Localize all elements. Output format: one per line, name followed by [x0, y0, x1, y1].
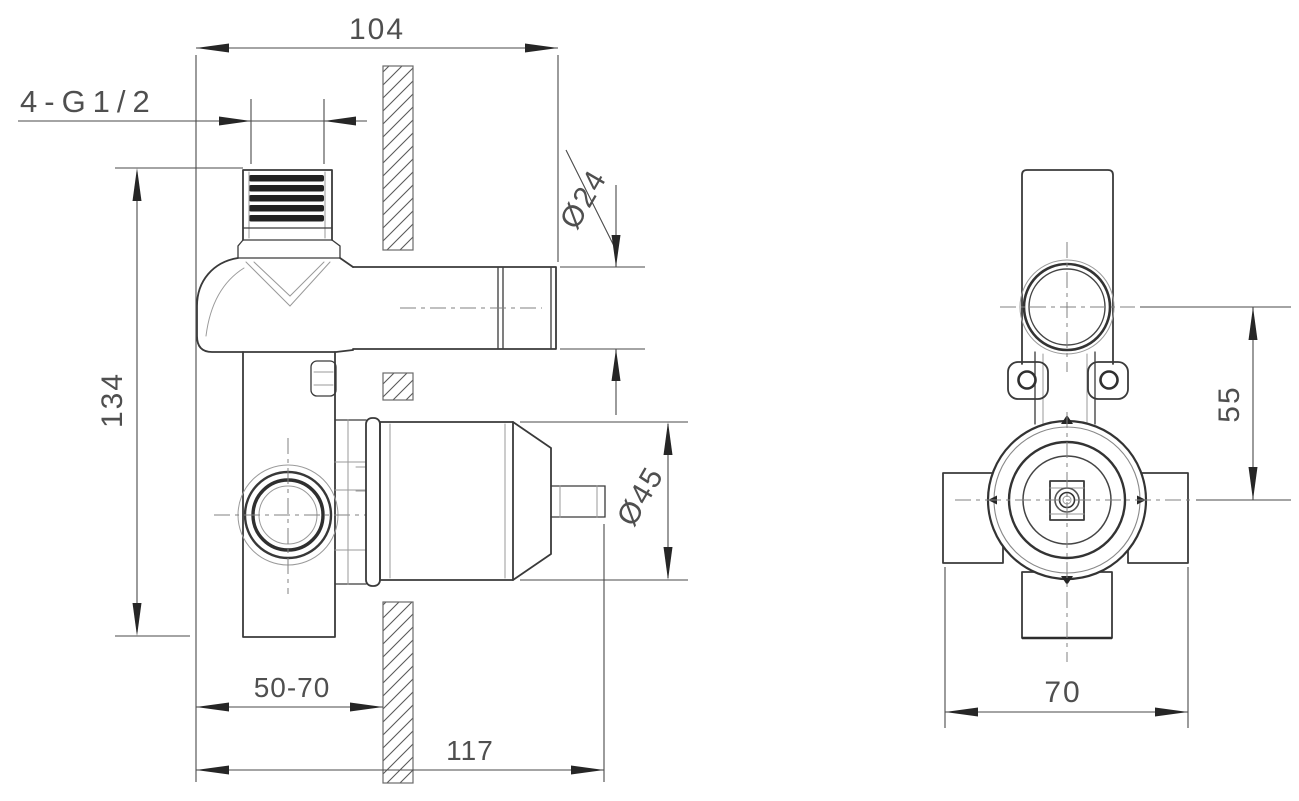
side-view: 104 4-G1/2 Ø24 134 Ø45 — [18, 13, 688, 783]
outlet-pipe — [353, 267, 556, 349]
dim-port-offset: 55 — [1140, 307, 1291, 500]
screw-hole-left — [1019, 372, 1036, 389]
valve-body — [214, 352, 366, 637]
dim-dia45-label: Ø45 — [611, 461, 671, 532]
dim-thread-spec: 4-G1/2 — [18, 84, 367, 164]
mounting-ears — [1008, 362, 1128, 399]
dim-body-width: 70 — [945, 567, 1188, 728]
dim-55-label: 55 — [1213, 385, 1246, 422]
threaded-port — [238, 170, 340, 258]
dim-104-label: 104 — [349, 13, 405, 46]
technical-drawing-page: 104 4-G1/2 Ø24 134 Ø45 — [0, 0, 1299, 801]
dim-width-104: 104 — [196, 13, 558, 782]
dim-70-label: 70 — [1044, 676, 1081, 709]
dim-thread-spec-label: 4-G1/2 — [20, 84, 157, 119]
cartridge-housing — [335, 418, 380, 586]
dim-wall-depth: 50-70 — [196, 672, 383, 712]
cartridge — [380, 422, 605, 580]
dim-dia24-label: Ø24 — [554, 164, 614, 235]
dim-117-label: 117 — [446, 735, 494, 766]
dim-height-134: 134 — [96, 168, 243, 636]
elbow-body — [197, 258, 353, 352]
dim-pipe-diameter: Ø24 — [554, 150, 645, 415]
front-view: 55 70 — [943, 170, 1291, 728]
dim-134-label: 134 — [96, 372, 129, 428]
valve-installation-drawing: 104 4-G1/2 Ø24 134 Ø45 — [0, 0, 1299, 801]
top-pipe — [1022, 170, 1113, 428]
wall-section — [383, 66, 413, 783]
screw-hole-right — [1101, 372, 1118, 389]
dim-50-70-label: 50-70 — [254, 672, 331, 703]
